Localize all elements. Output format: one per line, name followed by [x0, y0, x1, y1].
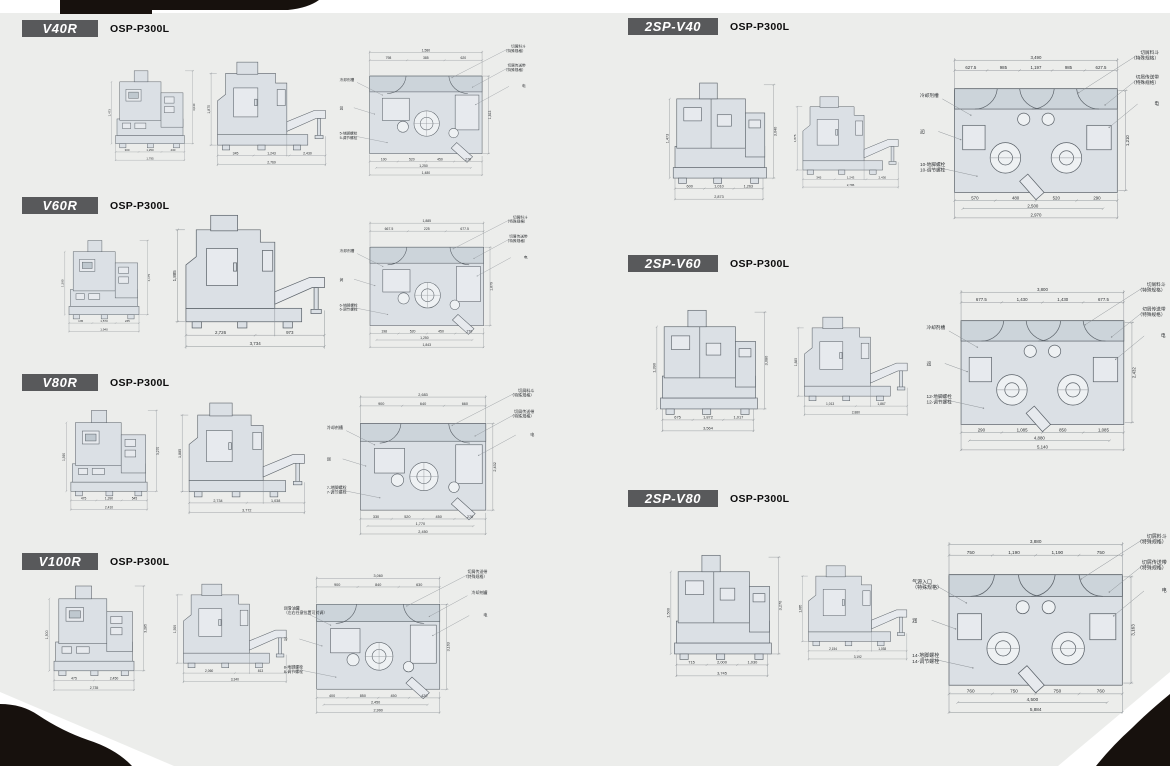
dim-label: 750	[967, 550, 975, 555]
callout-label: 电	[524, 254, 528, 259]
dim-label: 1,390	[62, 453, 66, 461]
dim-label: 100	[381, 158, 387, 162]
dim-label: 813	[258, 669, 264, 673]
side-view-2sp-v40: 3451,2432,4302,7861,875	[783, 78, 911, 208]
dim-label: 1,885	[172, 270, 177, 282]
front-view-2sp-v60: 6751,8721,0173,5643,0801,390	[634, 303, 782, 440]
dim-label: 677.5	[1098, 297, 1109, 302]
dim-label: 630	[416, 583, 422, 587]
dim-label: 1,190	[1052, 550, 1064, 555]
callout-label: 6-地脚螺栓	[340, 302, 358, 307]
callout-label: 冷却剂槽	[340, 248, 355, 253]
callout-label: （特殊规格）	[1137, 565, 1167, 572]
model-badge: 2SP-V60	[628, 255, 718, 272]
dim-label: 3,880	[1030, 539, 1042, 544]
dim-label: 545	[132, 496, 138, 500]
callout-label: 6-调节螺栓	[340, 307, 358, 312]
dim-label: 627.5	[1096, 65, 1107, 70]
dim-label: 2,432	[493, 462, 497, 471]
dim-label: 1,243	[267, 152, 276, 156]
dim-label: 1,885	[794, 358, 798, 366]
callout-label: （特殊规格）	[464, 574, 488, 579]
callout-label: 10-调节螺栓	[920, 167, 946, 174]
dim-label: 2,000	[717, 660, 728, 665]
side-view-v80r: 2,7341,0383,7721,885	[165, 390, 320, 528]
model-badge: 2SP-V80	[628, 490, 718, 507]
dim-label: 3,060	[374, 574, 383, 578]
dim-label: 1,430	[1017, 297, 1028, 302]
dim-label: 290	[978, 427, 986, 432]
callout-label: 冷却剂槽	[340, 77, 355, 82]
dim-label: 225	[424, 227, 430, 231]
dim-label: 840	[375, 583, 381, 587]
dim-label: 1,250	[420, 336, 429, 340]
dim-label: 1,210	[1125, 135, 1130, 146]
plan-view-2sp-v80: 3,8807501,1901,1907503,1637607507507604,…	[910, 523, 1170, 725]
callout-label: 切屑料斗	[511, 44, 526, 49]
dim-label: 2,970	[1030, 213, 1041, 218]
dim-label: 760	[967, 688, 975, 693]
dim-label: 2,734	[213, 499, 222, 503]
callout-label: 8-调节螺栓	[284, 669, 303, 674]
model-name: 2SP-V40	[645, 19, 701, 34]
dim-label: 627.5	[965, 65, 976, 70]
dim-label: 1,795	[146, 156, 154, 160]
section-header-v40r: V40R OSP-P300L	[22, 20, 169, 37]
dim-label: 1,875	[793, 134, 797, 142]
dim-label: 2,726	[215, 330, 227, 335]
dim-label: 2,450	[418, 530, 427, 534]
model-name: V40R	[43, 21, 78, 36]
dim-label: 985	[1000, 65, 1008, 70]
dim-label: 3,192	[854, 655, 862, 659]
dim-label: 750	[1010, 688, 1018, 693]
section-header-2sp-v80: 2SP-V80 OSP-P300L	[628, 490, 789, 507]
dim-label: 3,772	[242, 508, 251, 512]
callout-label: 切屑料斗	[513, 214, 528, 219]
side-view-v60r: 2,7269733,7341,885	[155, 205, 345, 360]
callout-label: （特殊规格）	[504, 67, 526, 72]
callout-label: 电	[1161, 332, 1166, 338]
dim-label: 270	[467, 515, 473, 519]
dim-label: 3,285	[143, 624, 147, 633]
callout-label: 润	[912, 617, 917, 624]
plan-view-2sp-v40: 3,490627.59851,197985627.51,210570480520…	[913, 46, 1167, 224]
dim-label: 300	[125, 148, 130, 152]
dim-label: 3,080	[764, 355, 769, 366]
model-badge: V80R	[22, 374, 98, 391]
dim-label: 3,564	[703, 426, 714, 431]
dim-label: 2,410	[105, 506, 113, 510]
callout-label: 切屑传送带	[509, 234, 528, 239]
control-label: OSP-P300L	[110, 377, 169, 389]
model-name: 2SP-V60	[645, 256, 701, 271]
dim-label: 1,430	[1057, 297, 1068, 302]
dim-label: 5,140	[1037, 445, 1048, 450]
callout-label: （特殊规格）	[1137, 539, 1167, 546]
dim-label: 198	[381, 330, 387, 334]
plan-view-v60r: 1,885667.5225677.51,8791985204502701,250…	[338, 198, 530, 366]
callout-label: 冷	[284, 637, 288, 642]
dim-label: 1,085	[1098, 427, 1109, 432]
dim-label: 450	[390, 694, 396, 698]
dim-label: 520	[404, 515, 410, 519]
dim-label: 2,060	[205, 669, 213, 673]
callout-label: 电	[1154, 100, 1159, 106]
dim-label: 750	[1097, 550, 1105, 555]
dim-label: 290	[1093, 195, 1101, 200]
callout-label: 冷却剂罐	[472, 590, 488, 595]
dim-label: 2,786	[847, 183, 855, 187]
dim-label: 3,745	[717, 671, 728, 676]
dim-label: 1,885	[422, 219, 431, 223]
dim-label: 677.5	[976, 297, 987, 302]
dim-label: 430	[170, 148, 175, 152]
model-badge: 2SP-V40	[628, 18, 718, 35]
dim-label: 385	[423, 56, 429, 60]
callout-label: （特殊规格）	[1131, 79, 1159, 86]
dim-label: 1,030	[748, 660, 759, 665]
callout-label: 冷却剂槽	[920, 92, 939, 99]
dim-label: 3,270	[778, 600, 783, 611]
side-view-2sp-v80: 2,1541,0383,1921,885	[788, 540, 920, 687]
dim-label: 450	[438, 330, 444, 334]
dim-label: 1,017	[734, 415, 744, 420]
control-label: OSP-P300L	[110, 556, 169, 568]
model-badge: V60R	[22, 197, 98, 214]
callout-label: 电	[530, 431, 534, 437]
front-view-v100r: 4752,4502,7353,2851,500	[30, 572, 158, 704]
dim-label: 1,770	[416, 522, 425, 526]
dim-label: 850	[360, 694, 366, 698]
dim-label: 2,880	[852, 411, 860, 415]
callout-label: 润	[340, 105, 344, 110]
dim-label: 3,800	[1037, 287, 1048, 292]
dim-label: 1,500	[173, 625, 177, 633]
dim-label: 480	[1012, 195, 1020, 200]
dim-label: 1,872	[703, 415, 713, 420]
dim-label: 677.5	[460, 227, 469, 231]
callout-label: 5-地脚螺栓	[340, 131, 358, 136]
dim-label: 1,390	[105, 496, 113, 500]
dim-label: 3,734	[250, 341, 262, 346]
dim-label: 715	[688, 660, 695, 665]
dim-label: 667.5	[385, 227, 394, 231]
dim-label: 3,340	[231, 678, 239, 682]
dim-label: 1,085	[1017, 427, 1028, 432]
dim-label: 450	[436, 515, 442, 519]
dim-label: 1,473	[107, 109, 111, 117]
dim-label: 3,175	[147, 274, 151, 282]
dim-label: 2,683	[418, 393, 427, 397]
dim-label: 2,735	[90, 686, 99, 690]
callout-label: （特殊规格）	[506, 219, 528, 224]
dim-label: 270	[467, 330, 473, 334]
dim-label: 2,450	[371, 701, 380, 705]
dim-label: 985	[1065, 65, 1073, 70]
dim-label: 2,873	[714, 195, 723, 199]
dim-label: 1,010	[714, 184, 723, 188]
callout-label: 润	[340, 277, 344, 282]
dim-label: 475	[81, 496, 87, 500]
dim-label: 1,879	[490, 282, 494, 291]
callout-label: （特殊规格）	[1138, 287, 1166, 294]
dim-label: 1,580	[422, 48, 431, 52]
dim-label: 1,813	[488, 111, 492, 120]
dim-label: 570	[971, 195, 979, 200]
callout-label: 冷却剂槽	[327, 424, 343, 430]
dim-label: 345	[233, 152, 239, 156]
dim-label: 1,875	[207, 105, 211, 114]
callout-label: 12-调节螺栓	[926, 399, 952, 406]
callout-label: （特殊规格）	[506, 238, 528, 243]
plan-view-2sp-v60: 3,800677.51,4301,430677.52,4322901,08585…	[923, 278, 1170, 456]
dim-label: 1,190	[1008, 550, 1020, 555]
model-badge: V100R	[22, 553, 98, 570]
dim-label: 1,867	[877, 402, 885, 406]
callout-label: 5-调节螺栓	[340, 135, 358, 140]
dim-label: 2,432	[1131, 367, 1136, 378]
callout-label: （特殊规格）	[1138, 311, 1166, 318]
front-view-2sp-v80: 7152,0001,0303,7453,2701,500	[646, 548, 798, 685]
callout-label: （特殊规格）	[510, 413, 534, 419]
callout-label: 润	[926, 360, 931, 367]
dim-label: 270	[465, 158, 471, 162]
dim-label: 900	[378, 402, 384, 406]
dim-label: 2,769	[267, 160, 276, 164]
dim-label: 640	[420, 402, 426, 406]
dim-label: 1,038	[271, 499, 280, 503]
callout-label: 冷却剂槽	[926, 324, 945, 331]
dim-label: 3,040	[774, 127, 778, 136]
dim-label: 1,390	[61, 279, 65, 287]
dim-label: 600	[687, 184, 693, 188]
dim-label: 2,430	[303, 152, 312, 156]
dim-label: 235	[125, 319, 130, 323]
callout-label: 7-调节螺栓	[327, 489, 347, 495]
dim-label: 4,880	[1034, 435, 1045, 440]
dim-label: 2,990	[374, 709, 383, 713]
callout-label: （左右任意位置可对调）	[284, 610, 328, 615]
dim-label: 1,243	[847, 175, 855, 179]
callout-label: 电	[483, 612, 487, 617]
dim-label: 520	[1053, 195, 1061, 200]
dim-label: 900	[334, 583, 340, 587]
model-name: V80R	[43, 375, 78, 390]
dim-label: 1,500	[665, 607, 670, 618]
callout-label: 润	[920, 128, 925, 135]
dim-label: 1,885	[178, 449, 182, 458]
plan-view-v80r: 2,6839006406602,4323305204502701,7702,45…	[325, 383, 537, 541]
dim-label: 1,473	[665, 134, 669, 143]
dim-label: 450	[437, 158, 443, 162]
callout-label: （特殊规格）	[504, 48, 526, 53]
side-view-v40r: 3451,2432,4302,7691,875	[195, 42, 340, 187]
dim-label: 2,154	[829, 647, 837, 651]
dim-label: 135	[78, 319, 83, 323]
front-view-v40r: 3001,2504301,7953,0401,473	[95, 48, 205, 183]
front-view-v80r: 4751,3905452,4103,2701,390	[48, 390, 170, 530]
dim-label: 1,250	[146, 148, 154, 152]
dim-label: 1,940	[100, 328, 108, 332]
dim-label: 520	[410, 330, 416, 334]
dim-label: 345	[816, 175, 821, 179]
dim-label: 973	[286, 330, 294, 335]
section-header-2sp-v60: 2SP-V60 OSP-P300L	[628, 255, 789, 272]
dim-label: 675	[674, 415, 681, 420]
dim-label: 1,843	[422, 343, 431, 347]
model-badge: V40R	[22, 20, 98, 37]
dim-label: 2,450	[110, 676, 119, 680]
dim-label: 1,390	[651, 362, 656, 373]
section-header-2sp-v40: 2SP-V40 OSP-P300L	[628, 18, 789, 35]
callout-label: （特殊规格）	[912, 584, 942, 591]
callout-label: （特殊规格）	[1131, 55, 1159, 62]
dim-label: 2,500	[1027, 203, 1038, 208]
dim-label: 1,885	[798, 605, 802, 613]
callout-label: 润	[327, 456, 331, 462]
front-view-2sp-v40: 6001,0101,2632,8733,0401,473	[648, 76, 790, 208]
dim-label: 5,884	[1030, 707, 1042, 712]
dim-label: 3,163	[447, 642, 451, 651]
control-label: OSP-P300L	[730, 21, 789, 33]
dim-label: 760	[1097, 688, 1105, 693]
dim-label: 4,500	[1027, 697, 1039, 702]
side-view-2sp-v60: 1,0131,8672,8801,885	[783, 296, 921, 438]
dim-label: 660	[462, 402, 468, 406]
dim-label: 330	[373, 515, 379, 519]
plan-view-v40r: 1,5807983856201,8131005204502701,2501,48…	[338, 28, 528, 193]
dim-label: 2,430	[879, 175, 887, 179]
dim-label: 1,197	[1030, 65, 1041, 70]
dim-label: 750	[1053, 688, 1061, 693]
dim-label: 420	[421, 694, 427, 698]
control-label: OSP-P300L	[730, 258, 789, 270]
dim-label: 400	[329, 694, 335, 698]
callout-label: 电	[1162, 587, 1167, 594]
model-name: 2SP-V80	[645, 491, 701, 506]
dim-label: 1,500	[45, 630, 49, 639]
dim-label: 1,570	[100, 319, 108, 323]
dim-label: 3,490	[1030, 55, 1041, 60]
dim-label: 3,270	[156, 447, 160, 455]
dim-label: 475	[71, 676, 77, 680]
side-view-v100r: 2,0608133,3401,500	[162, 563, 300, 705]
dim-label: 850	[1059, 427, 1067, 432]
dim-label: 1,038	[878, 647, 886, 651]
section-header-v80r: V80R OSP-P300L	[22, 374, 169, 391]
dim-label: 798	[386, 56, 392, 60]
plan-view-v100r: 3,0609008406303,1634008504504202,4502,99…	[282, 548, 490, 736]
control-label: OSP-P300L	[730, 493, 789, 505]
dim-label: 520	[409, 158, 415, 162]
control-label: OSP-P300L	[110, 23, 169, 35]
dim-label: 1,480	[422, 171, 431, 175]
callout-label: 电	[522, 83, 526, 88]
section-header-v60r: V60R OSP-P300L	[22, 197, 169, 214]
dim-label: 620	[461, 56, 467, 60]
dim-label: 1,250	[419, 164, 428, 168]
front-view-v60r: 1351,5702351,9403,1751,390	[48, 215, 160, 357]
callout-label: （特殊规格）	[510, 392, 534, 398]
section-header-v100r: V100R OSP-P300L	[22, 553, 169, 570]
callout-label: 切屑传送带	[508, 63, 526, 68]
dim-label: 1,013	[826, 402, 834, 406]
model-name: V100R	[39, 554, 82, 569]
model-name: V60R	[43, 198, 78, 213]
callout-label: 14-调节螺栓	[912, 658, 939, 665]
dim-label: 1,263	[744, 184, 753, 188]
dim-label: 3,163	[1131, 624, 1136, 636]
catalog-page: V40R OSP-P300L 3001,2504301,7953,0401,47…	[0, 0, 1170, 766]
